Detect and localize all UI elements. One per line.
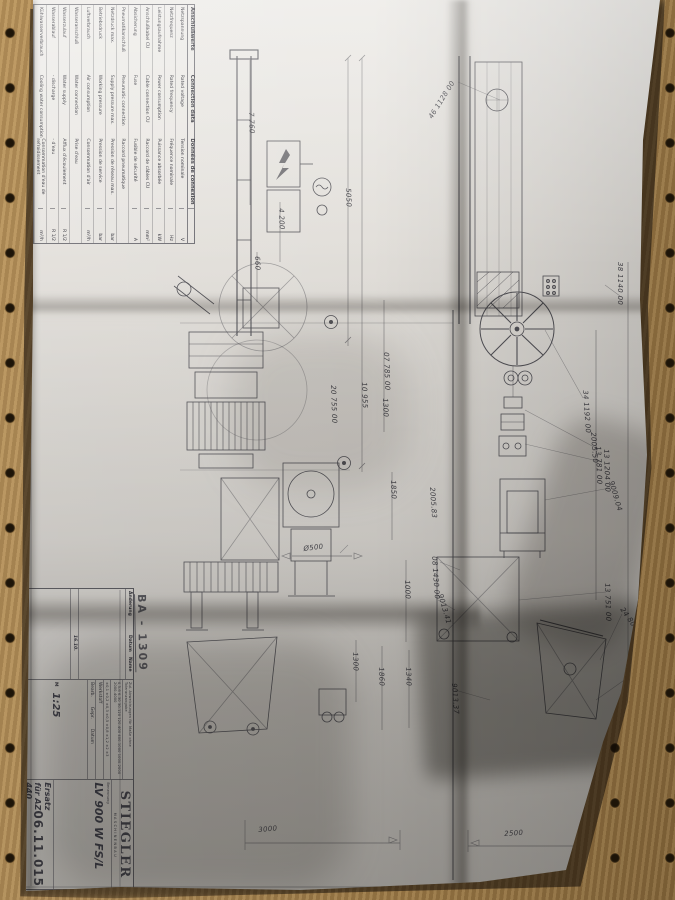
part-number-label: 20 755 00 [329, 385, 338, 424]
part-number-label: 13 751 00 [603, 583, 612, 622]
tolerance-note: Zul. Abweichungen für Maße ohne Toleranz… [122, 680, 133, 779]
werkstoff-label: Werkstoff [97, 682, 102, 703]
drawing-title: LV 900 W FS/L [91, 782, 104, 887]
right-frame-stand [437, 557, 519, 642]
datum-label: Datum [89, 729, 94, 744]
conn-row: LeistungsaufnahmePower consumptionPuissa… [152, 5, 164, 243]
photo-of-technical-drawing: 46 1128 00 38 1140 00 34 1192 00 2005.50… [0, 0, 675, 900]
benennung-label: Benennung [106, 782, 110, 803]
conn-row: LuftverbrauchAir consumptionConsommation… [81, 5, 93, 243]
conn-row: NetzfrequenzRated frequencyFréquence nom… [164, 5, 176, 243]
conn-row: Wasserablauf- discharge- d'eauR 1/2 [46, 5, 58, 243]
dimension-label: 1340 [404, 667, 413, 686]
conn-row: PneumatikanschlußPneumatic connectionRac… [117, 5, 129, 243]
bearb-label: Bearb. [89, 682, 94, 697]
dimension-label: 10 955 [360, 382, 369, 409]
winder-plan [174, 276, 307, 468]
connection-data-table: Anschlußwerte Connection data Données de… [33, 4, 193, 242]
dimension-label: 4 200 [277, 208, 286, 230]
plan-view-extrusion-line [230, 50, 258, 336]
ground-and-axis-lines [180, 262, 628, 880]
gepr-label: Gepr. [89, 707, 94, 719]
conn-row: AbsicherungFuseFusible de sécuritéA [128, 5, 140, 243]
small-cart [319, 689, 346, 722]
conn-header-en: Connection data [188, 75, 194, 139]
tolerance-and-fields: Zul. Abweichungen für Maße ohne Toleranz… [23, 680, 133, 780]
conn-row: WasserzulaufWater supplyAfflux d'écoulem… [58, 5, 70, 243]
dimension-label: 2500 [504, 829, 524, 838]
revision-col-aenderung: Änderung [127, 591, 132, 635]
conn-row: NetzspannungRated voltageTension nominal… [175, 5, 187, 243]
tolerance-values: ±0,1 ±0,2 ±0,3 ±0,5 ±0,8 ±1,2 ±2 ±3 [103, 680, 110, 779]
right-cabinet [500, 479, 545, 558]
revision-col-datum: Datum [127, 635, 132, 657]
title-company-section: STIEGLER M A S C H I N E N B A U Benennu… [23, 780, 133, 889]
revision-table: Änderung Datum Name 16.10. [23, 589, 133, 680]
conn-header-de: Anschlußwerte [188, 5, 194, 75]
company-name: STIEGLER [117, 782, 132, 887]
part-number-label: 07 785 00 [382, 352, 391, 391]
conn-header-fr: Données de connexion [188, 138, 194, 208]
conn-row: WasseranschlußWater connectionPrise d'ea… [69, 5, 81, 243]
scale-label: M [53, 682, 58, 686]
a-frame-stand [537, 620, 606, 719]
dimension-label: 1860 [377, 667, 386, 686]
dimension-label: 5050 [344, 188, 353, 207]
dimension-label: 660 [253, 256, 261, 271]
replacement-note: Ersatz für AZ 440 [24, 782, 52, 810]
dimension-label: 1300 [381, 398, 390, 417]
dimension-label: 1850 [389, 480, 398, 499]
drawing-sheet: 46 1128 00 38 1140 00 34 1192 00 2005.50… [0, 0, 675, 900]
dimension-label: 3000 [258, 824, 278, 834]
conn-row: Anschlußkabel CUCable connection CURacco… [140, 5, 152, 243]
part-number-label: 38 1140 00 [616, 262, 624, 305]
dimension-label: 1300 [351, 652, 360, 671]
order-stamp: BA - 1309 [134, 594, 149, 672]
title-block: Änderung Datum Name 16.10. Zul. Abweichu… [22, 588, 132, 888]
right-plan-beam [459, 56, 559, 324]
tolerance-ranges: 0,5-6 6-30 30-120 120-400 400-1000 1000-… [111, 680, 122, 779]
revision-col-name: Name [127, 657, 132, 677]
dimension-label: 1000 [403, 580, 412, 599]
turntable-plan [219, 263, 351, 470]
conn-row: BetriebsdruckWorking pressurePression de… [93, 5, 105, 243]
dimension-label: 7 760 [247, 112, 256, 134]
tilted-stand-elevation [187, 637, 277, 735]
revision-date-entry: 16.10. [72, 635, 77, 657]
scale-value: 1:25 [50, 692, 62, 717]
conn-row: KühlwasserverbrauchCooling water consump… [34, 5, 46, 243]
conn-row: Netzdruck max.Supply pressure max.Pressi… [105, 5, 117, 243]
dimension-lines [245, 55, 638, 852]
drawing-number: 06.11.015 [31, 810, 45, 887]
